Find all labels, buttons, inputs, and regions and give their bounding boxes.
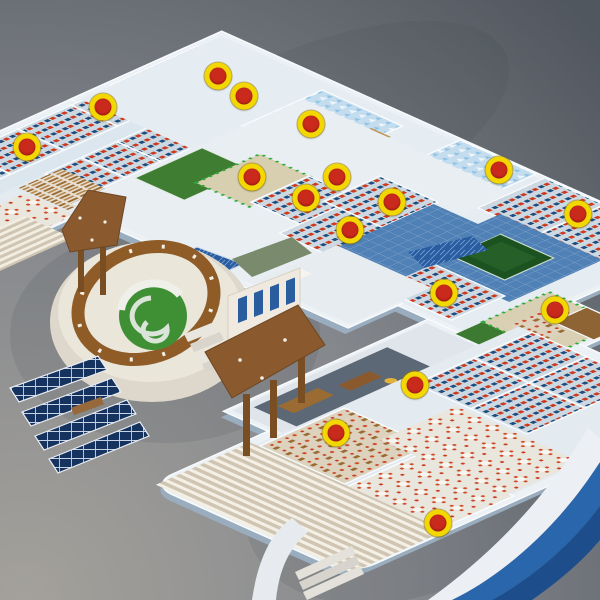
hotspot-core (436, 285, 453, 302)
hotspot-marker-14[interactable] (542, 297, 569, 324)
campus-map-stage (0, 0, 600, 600)
hotspot-marker-8[interactable] (293, 185, 320, 212)
hotspot-core (298, 190, 315, 207)
hotspot-marker-1[interactable] (14, 134, 41, 161)
hotspot-marker-12[interactable] (337, 217, 364, 244)
hotspot-core (244, 169, 261, 186)
hotspot-marker-15[interactable] (402, 372, 429, 399)
hotspot-marker-5[interactable] (298, 111, 325, 138)
hotspot-core (210, 68, 227, 85)
hotspot-marker-9[interactable] (379, 189, 406, 216)
hotspot-core (491, 162, 508, 179)
hotspot-core (384, 194, 401, 211)
hotspot-marker-4[interactable] (231, 83, 258, 110)
hotspot-core (570, 206, 587, 223)
hotspot-core (95, 99, 112, 116)
hotspot-core (342, 222, 359, 239)
hotspot-core (430, 515, 447, 532)
hotspot-core (407, 377, 424, 394)
hotspot-layer (0, 0, 600, 600)
hotspot-marker-11[interactable] (565, 201, 592, 228)
hotspot-marker-3[interactable] (205, 63, 232, 90)
hotspot-core (236, 88, 253, 105)
hotspot-core (19, 139, 36, 156)
hotspot-marker-7[interactable] (324, 164, 351, 191)
hotspot-marker-17[interactable] (425, 510, 452, 537)
hotspot-core (547, 302, 564, 319)
hotspot-core (303, 116, 320, 133)
hotspot-core (328, 425, 345, 442)
hotspot-marker-13[interactable] (431, 280, 458, 307)
hotspot-marker-6[interactable] (239, 164, 266, 191)
hotspot-marker-10[interactable] (486, 157, 513, 184)
hotspot-core (329, 169, 346, 186)
hotspot-marker-16[interactable] (323, 420, 350, 447)
hotspot-marker-2[interactable] (90, 94, 117, 121)
